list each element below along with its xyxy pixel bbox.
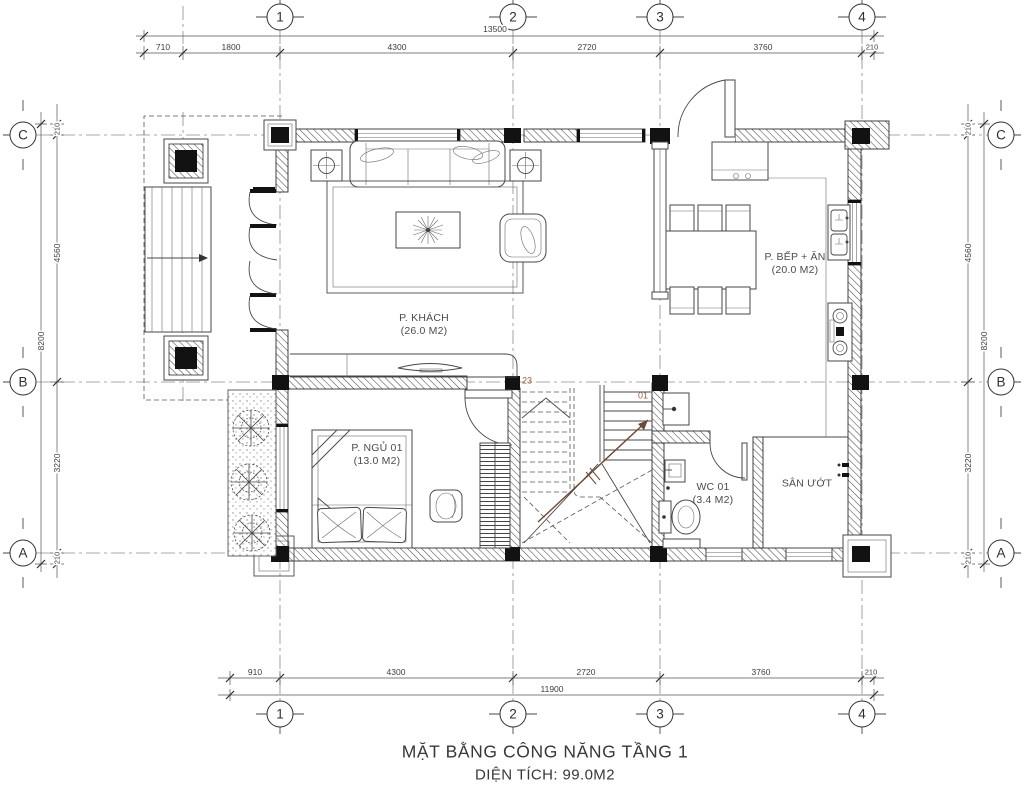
- grid-bubble-col-1-bottom: 1: [267, 701, 294, 728]
- porch: [144, 116, 282, 400]
- porch-column-bottom: [164, 336, 208, 380]
- grid-bubble-col-3-top: 3: [647, 4, 674, 31]
- dim-left-seg-3: 210: [53, 551, 61, 566]
- stair-label-first-step: 01: [638, 392, 648, 401]
- dim-left-seg-2: 3220: [53, 453, 62, 474]
- folding-door-living: [249, 189, 277, 332]
- kitchen-sink: [828, 205, 850, 260]
- sofa: [350, 141, 505, 187]
- room-label-living: P. KHÁCH (26.0 M2): [399, 312, 449, 338]
- dim-bottom-seg-0: 910: [247, 668, 263, 677]
- dim-right-seg-0: 210: [964, 122, 972, 137]
- room-bedroom-area: (13.0 M2): [354, 455, 401, 467]
- grid-bubble-row-B-left: B: [10, 369, 37, 396]
- furniture-bedroom: [312, 430, 510, 548]
- grid-bubble-col-3-bottom: 3: [647, 701, 674, 728]
- dim-right-seg-2: 3220: [964, 453, 973, 474]
- room-living-area: (26.0 M2): [401, 325, 448, 337]
- room-label-kitchen: P. BẾP + ĂN (20.0 M2): [764, 251, 825, 277]
- washer: [663, 393, 689, 425]
- tv-console: [290, 354, 517, 377]
- wc-step: [663, 539, 700, 548]
- porch-column-top: [164, 139, 208, 183]
- wardrobe: [480, 443, 510, 548]
- dim-top-seg-4: 3760: [753, 43, 774, 52]
- dim-top-seg-5: 210: [865, 43, 880, 51]
- living-column-right: [510, 150, 541, 181]
- room-label-wc: WC 01 (3.4 M2): [693, 481, 734, 507]
- dining-table-set: [666, 205, 756, 314]
- window-living-top: [355, 129, 460, 142]
- dim-left-total: 8200: [37, 331, 46, 352]
- armchair: [500, 214, 546, 262]
- room-wetyard-name: SÂN ƯỚT: [782, 478, 832, 490]
- floorplan-canvas: .w{fill:url(#h);stroke:#2e2e2e;stroke-wi…: [0, 0, 1024, 790]
- room-wc-area: (3.4 M2): [693, 494, 734, 506]
- dim-right-seg-3: 210: [964, 551, 972, 566]
- drawing-title: MẶT BẰNG CÔNG NĂNG TẦNG 1: [402, 742, 689, 763]
- room-kitchen-area: (20.0 M2): [772, 264, 819, 276]
- entry-door: [670, 80, 735, 143]
- grid-bubble-col-1-top: 1: [267, 4, 294, 31]
- counter-edge: [768, 178, 826, 437]
- wc-door: [710, 443, 747, 480]
- dim-right-total: 8200: [980, 331, 989, 352]
- living-column-left: [311, 150, 342, 181]
- grid-bubble-row-B-right: B: [988, 369, 1015, 396]
- bedroom-door: [465, 390, 512, 445]
- dim-bottom-total: 11900: [539, 685, 564, 694]
- room-label-bedroom: P. NGỦ 01 (13.0 M2): [351, 442, 402, 468]
- dim-top-seg-0: 710: [155, 43, 171, 52]
- window-bedroom-left: [276, 424, 288, 512]
- furniture-living: [290, 141, 546, 377]
- dim-left-seg-1: 4560: [53, 243, 62, 264]
- dim-top-seg-3: 2720: [577, 43, 598, 52]
- stove: [828, 303, 852, 361]
- fridge-cabinet: [712, 142, 768, 180]
- dim-bottom-seg-3: 3760: [751, 668, 772, 677]
- grid-bubble-row-A-right: A: [988, 540, 1015, 567]
- stair-label-last-step: 23: [522, 377, 532, 386]
- room-living-name: P. KHÁCH: [399, 312, 449, 324]
- drawing-subtitle-area: DIỆN TÍCH: 99.0M2: [475, 767, 615, 784]
- grid-bubble-col-4-bottom: 4: [849, 701, 876, 728]
- dim-top-seg-1: 1800: [221, 43, 242, 52]
- wash-basin: [664, 460, 685, 490]
- planter: [228, 390, 276, 556]
- wetyard-faucet: [838, 463, 850, 477]
- window-wc-bottom: [706, 548, 742, 561]
- room-wc-name: WC 01: [696, 481, 729, 493]
- dim-bottom-seg-2: 2720: [576, 668, 597, 677]
- room-bedroom-name: P. NGỦ 01: [351, 442, 402, 454]
- grid-bubble-col-2-bottom: 2: [500, 701, 527, 728]
- pillow-left: [317, 507, 361, 542]
- dim-right-seg-1: 4560: [964, 243, 973, 264]
- grid-bubble-col-4-top: 4: [849, 4, 876, 31]
- coffee-table: [396, 212, 460, 248]
- staircase: [522, 385, 652, 543]
- window-hall-top: [577, 129, 645, 142]
- dim-left-seg-0: 210: [53, 122, 61, 137]
- grid-bubble-row-A-left: A: [10, 540, 37, 567]
- window-wetyard-bottom: [786, 548, 832, 561]
- side-table: [430, 490, 462, 522]
- room-kitchen-name: P. BẾP + ĂN: [764, 251, 825, 263]
- grid-bubble-row-C-left: C: [10, 122, 37, 149]
- dim-top-seg-2: 4300: [387, 43, 408, 52]
- dim-bottom-seg-1: 4300: [386, 668, 407, 677]
- pillow-right: [362, 507, 406, 542]
- room-label-wetyard: SÂN ƯỚT: [782, 478, 832, 491]
- dim-top-total: 13500: [482, 25, 508, 34]
- grid-bubble-row-C-right: C: [988, 122, 1015, 149]
- dim-bottom-seg-4: 210: [864, 668, 879, 676]
